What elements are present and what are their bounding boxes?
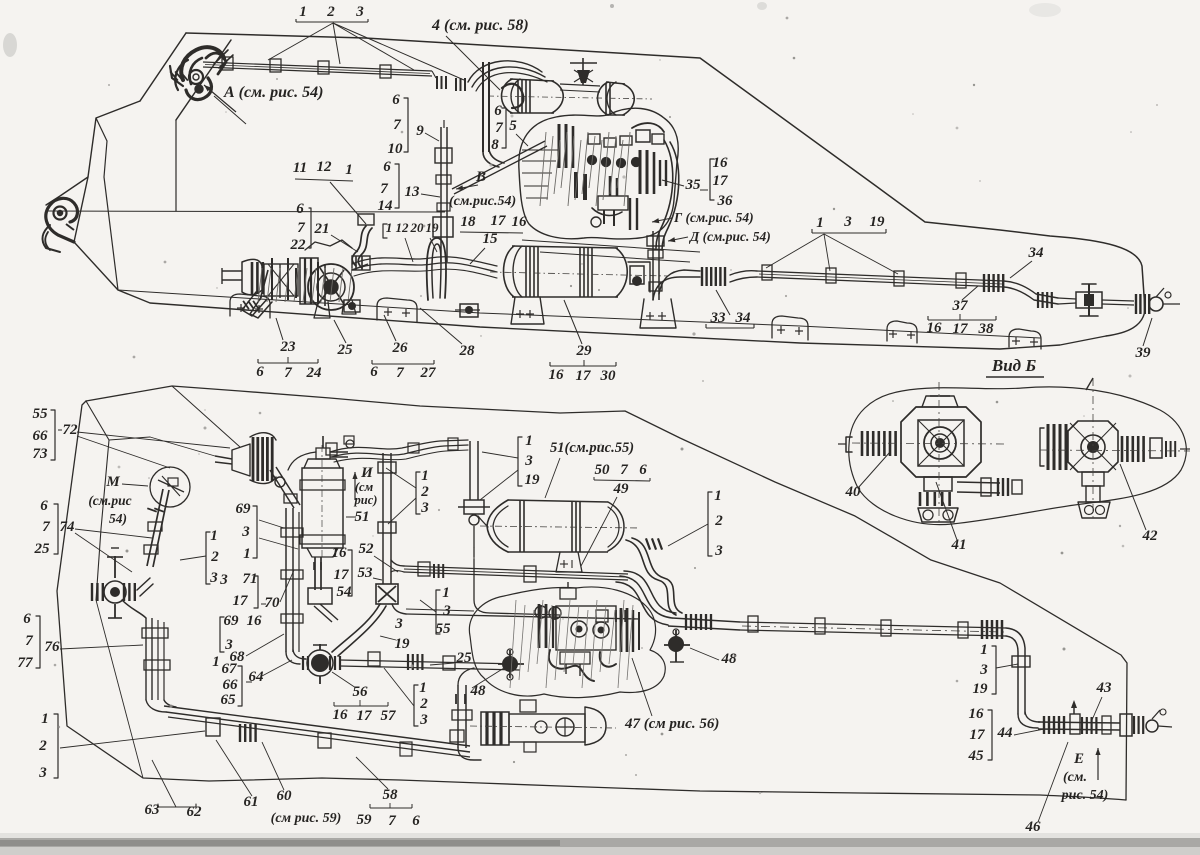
svg-text:17: 17 xyxy=(576,368,592,384)
svg-text:7: 7 xyxy=(42,519,50,535)
svg-text:3: 3 xyxy=(420,500,429,516)
svg-text:19: 19 xyxy=(525,472,541,488)
svg-text:34: 34 xyxy=(735,310,752,326)
svg-text:19: 19 xyxy=(973,681,989,697)
svg-text:25: 25 xyxy=(456,650,473,666)
svg-text:4 (см. рис. 58): 4 (см. рис. 58) xyxy=(431,17,529,34)
svg-text:59: 59 xyxy=(357,812,373,828)
svg-text:19: 19 xyxy=(870,214,886,230)
svg-text:М: М xyxy=(105,474,120,490)
svg-text:2: 2 xyxy=(38,738,47,754)
svg-text:22: 22 xyxy=(290,237,307,253)
svg-text:1: 1 xyxy=(816,215,824,231)
svg-text:1: 1 xyxy=(243,546,251,562)
svg-text:Д (см.рис. 54): Д (см.рис. 54) xyxy=(688,229,771,244)
svg-text:2: 2 xyxy=(419,696,428,712)
svg-text:38: 38 xyxy=(978,321,995,337)
svg-text:1: 1 xyxy=(442,585,450,601)
svg-text:6: 6 xyxy=(256,364,264,380)
svg-text:37: 37 xyxy=(952,298,969,314)
svg-text:15: 15 xyxy=(483,231,499,247)
svg-text:3: 3 xyxy=(442,603,451,619)
svg-text:6: 6 xyxy=(296,201,304,217)
svg-text:1: 1 xyxy=(41,711,49,727)
svg-text:3: 3 xyxy=(524,453,533,469)
svg-text:64: 64 xyxy=(249,669,265,685)
svg-text:1: 1 xyxy=(210,528,218,544)
svg-text:25: 25 xyxy=(34,541,51,557)
svg-text:14: 14 xyxy=(378,198,394,214)
svg-text:Е: Е xyxy=(1073,751,1084,767)
svg-text:45: 45 xyxy=(968,748,985,764)
svg-text:(см.рис: (см.рис xyxy=(88,493,131,508)
svg-text:67: 67 xyxy=(222,661,238,677)
svg-text:(см рис. 59): (см рис. 59) xyxy=(271,811,342,826)
svg-text:71: 71 xyxy=(243,571,258,587)
svg-text:66: 66 xyxy=(223,677,239,693)
svg-text:рис): рис) xyxy=(354,493,378,507)
svg-text:73: 73 xyxy=(33,446,49,462)
svg-text:24: 24 xyxy=(306,365,323,381)
svg-text:Г (см.рис. 54): Г (см.рис. 54) xyxy=(673,210,754,225)
svg-text:76: 76 xyxy=(45,639,61,655)
svg-text:18: 18 xyxy=(461,214,477,230)
svg-text:6: 6 xyxy=(639,462,647,478)
svg-text:3: 3 xyxy=(714,543,723,559)
svg-text:21: 21 xyxy=(314,221,330,237)
svg-text:66: 66 xyxy=(33,428,49,444)
svg-text:40: 40 xyxy=(845,484,862,500)
svg-text:1: 1 xyxy=(421,468,429,484)
svg-text:16: 16 xyxy=(969,706,985,722)
svg-text:36: 36 xyxy=(717,193,734,209)
svg-text:6: 6 xyxy=(23,611,31,627)
svg-text:А (см. рис. 54): А (см. рис. 54) xyxy=(223,84,323,101)
svg-text:54: 54 xyxy=(337,584,353,600)
svg-text:57: 57 xyxy=(381,708,397,724)
svg-text:43: 43 xyxy=(1096,680,1113,696)
svg-text:7: 7 xyxy=(388,813,396,829)
svg-text:19: 19 xyxy=(395,636,411,652)
svg-text:17: 17 xyxy=(334,567,350,583)
svg-text:25: 25 xyxy=(337,342,354,358)
svg-text:3: 3 xyxy=(394,616,403,632)
svg-text:61: 61 xyxy=(244,794,259,810)
svg-text:48: 48 xyxy=(721,651,738,667)
svg-text:77: 77 xyxy=(18,655,34,671)
svg-text:39: 39 xyxy=(1135,345,1152,361)
svg-text:20: 20 xyxy=(410,220,425,235)
svg-text:29: 29 xyxy=(576,343,593,359)
svg-text:3: 3 xyxy=(219,572,228,588)
svg-text:5: 5 xyxy=(509,118,517,134)
svg-text:52: 52 xyxy=(359,541,375,557)
svg-text:6: 6 xyxy=(40,498,48,514)
svg-text:2: 2 xyxy=(420,484,429,500)
svg-text:1: 1 xyxy=(525,433,533,449)
svg-text:6: 6 xyxy=(412,813,420,829)
svg-text:1: 1 xyxy=(714,488,722,504)
svg-text:17: 17 xyxy=(233,593,249,609)
svg-text:19: 19 xyxy=(426,220,440,235)
svg-text:35: 35 xyxy=(685,177,702,193)
svg-text:3: 3 xyxy=(38,765,47,781)
svg-text:70: 70 xyxy=(265,595,281,611)
svg-text:8: 8 xyxy=(491,137,499,153)
svg-text:30: 30 xyxy=(600,368,617,384)
svg-text:7: 7 xyxy=(393,117,401,133)
svg-text:69: 69 xyxy=(224,613,240,629)
svg-text:7: 7 xyxy=(25,633,33,649)
svg-text:49: 49 xyxy=(613,481,630,497)
svg-text:12: 12 xyxy=(317,159,333,175)
svg-text:1: 1 xyxy=(212,654,220,670)
svg-text:27: 27 xyxy=(420,365,437,381)
svg-text:3: 3 xyxy=(241,524,250,540)
svg-text:9: 9 xyxy=(416,123,424,139)
svg-text:1: 1 xyxy=(386,220,393,235)
svg-text:51(см.рис.55): 51(см.рис.55) xyxy=(550,440,634,456)
svg-text:16: 16 xyxy=(549,367,565,383)
svg-text:10: 10 xyxy=(388,141,404,157)
svg-text:65: 65 xyxy=(221,692,237,708)
svg-text:1: 1 xyxy=(419,680,427,696)
svg-text:7: 7 xyxy=(620,462,628,478)
svg-text:7: 7 xyxy=(495,120,503,136)
svg-text:1: 1 xyxy=(299,4,307,20)
svg-text:6: 6 xyxy=(383,159,391,175)
svg-text:56: 56 xyxy=(353,684,369,700)
svg-text:6: 6 xyxy=(392,92,400,108)
svg-text:69: 69 xyxy=(236,501,252,517)
svg-text:54): 54) xyxy=(109,511,127,526)
svg-text:3: 3 xyxy=(979,662,988,678)
svg-text:62: 62 xyxy=(187,804,203,820)
svg-text:16: 16 xyxy=(512,214,528,230)
svg-text:В: В xyxy=(475,169,486,185)
svg-text:44: 44 xyxy=(997,725,1014,741)
svg-text:11: 11 xyxy=(293,160,307,176)
svg-text:28: 28 xyxy=(459,343,476,359)
svg-text:17: 17 xyxy=(970,727,986,743)
svg-text:2: 2 xyxy=(326,4,335,20)
svg-text:50: 50 xyxy=(595,462,611,478)
svg-text:6: 6 xyxy=(370,364,378,380)
svg-text:72: 72 xyxy=(63,422,79,438)
svg-text:60: 60 xyxy=(277,788,293,804)
svg-text:47 (см рис. 56): 47 (см рис. 56) xyxy=(624,716,719,732)
svg-text:58: 58 xyxy=(383,787,399,803)
svg-text:26: 26 xyxy=(392,340,409,356)
svg-text:2: 2 xyxy=(210,549,219,565)
svg-text:16: 16 xyxy=(333,707,349,723)
svg-text:17: 17 xyxy=(953,321,969,337)
svg-text:7: 7 xyxy=(297,220,305,236)
svg-text:7: 7 xyxy=(284,365,292,381)
svg-text:3: 3 xyxy=(419,712,428,728)
svg-text:1: 1 xyxy=(345,162,353,178)
svg-text:3: 3 xyxy=(843,214,852,230)
svg-text:И: И xyxy=(360,465,374,481)
svg-text:(см.: (см. xyxy=(1063,770,1087,785)
svg-text:51: 51 xyxy=(355,509,370,525)
svg-text:Вид Б: Вид Б xyxy=(991,356,1036,375)
svg-text:(см: (см xyxy=(355,480,374,494)
svg-text:(см.рис.54): (см.рис.54) xyxy=(449,194,516,209)
svg-text:34: 34 xyxy=(1028,245,1045,261)
svg-text:6: 6 xyxy=(494,103,502,119)
svg-text:13: 13 xyxy=(405,184,421,200)
svg-text:2: 2 xyxy=(714,513,723,529)
svg-text:рис. 54): рис. 54) xyxy=(1061,788,1109,803)
svg-text:48: 48 xyxy=(470,683,487,699)
svg-text:1: 1 xyxy=(980,642,988,658)
svg-text:42: 42 xyxy=(1142,528,1159,544)
svg-text:16: 16 xyxy=(332,545,348,561)
svg-text:3: 3 xyxy=(355,4,364,20)
svg-text:7: 7 xyxy=(396,365,404,381)
svg-text:16: 16 xyxy=(927,320,943,336)
svg-text:23: 23 xyxy=(280,339,297,355)
svg-text:33: 33 xyxy=(710,310,727,326)
svg-text:16: 16 xyxy=(713,155,729,171)
svg-text:16: 16 xyxy=(247,613,263,629)
svg-text:12: 12 xyxy=(396,220,410,235)
svg-text:3: 3 xyxy=(209,570,218,586)
svg-text:17: 17 xyxy=(713,173,729,189)
svg-text:41: 41 xyxy=(951,537,967,553)
svg-text:55: 55 xyxy=(33,406,49,422)
svg-text:53: 53 xyxy=(358,565,374,581)
svg-text:17: 17 xyxy=(491,213,507,229)
svg-text:7: 7 xyxy=(380,181,388,197)
svg-text:17: 17 xyxy=(357,708,373,724)
svg-text:74: 74 xyxy=(60,519,76,535)
